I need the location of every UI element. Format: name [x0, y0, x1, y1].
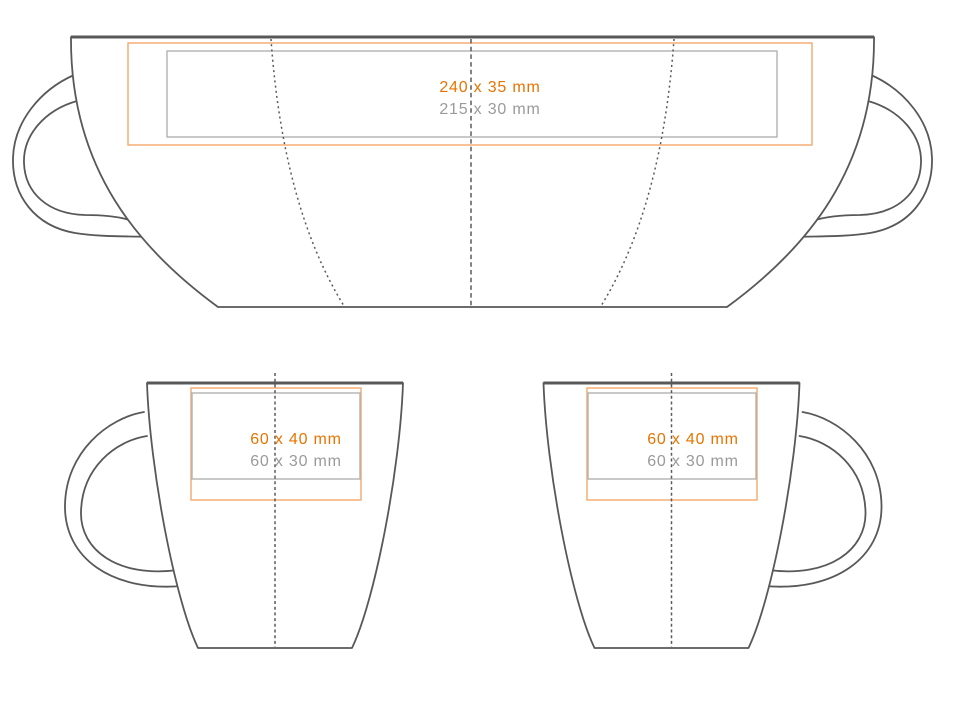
safe-area-size-label: 60 x 30 mm: [250, 453, 342, 470]
print-area-size-label: 60 x 40 mm: [250, 431, 342, 448]
print-area-size-label: 240 x 35 mm: [439, 79, 540, 96]
mug-shape-mirrored: [544, 383, 882, 648]
mug-print-template-diagram: 240 x 35 mm 215 x 30 mm 60 x 40 mm 60 x …: [0, 0, 953, 717]
wrap-view: 240 x 35 mm 215 x 30 mm: [13, 37, 932, 307]
mug-view-handle-left: 60 x 40 mm 60 x 30 mm: [65, 373, 403, 648]
safe-area-size-label: 215 x 30 mm: [439, 101, 540, 118]
print-area-size-label: 60 x 40 mm: [647, 431, 739, 448]
mug-shape: [65, 383, 403, 648]
wrap-body-outline: [71, 37, 874, 307]
mug-view-handle-right: 60 x 40 mm 60 x 30 mm: [544, 373, 882, 648]
safe-area-size-label: 60 x 30 mm: [647, 453, 739, 470]
template-canvas: 240 x 35 mm 215 x 30 mm 60 x 40 mm 60 x …: [0, 0, 953, 717]
